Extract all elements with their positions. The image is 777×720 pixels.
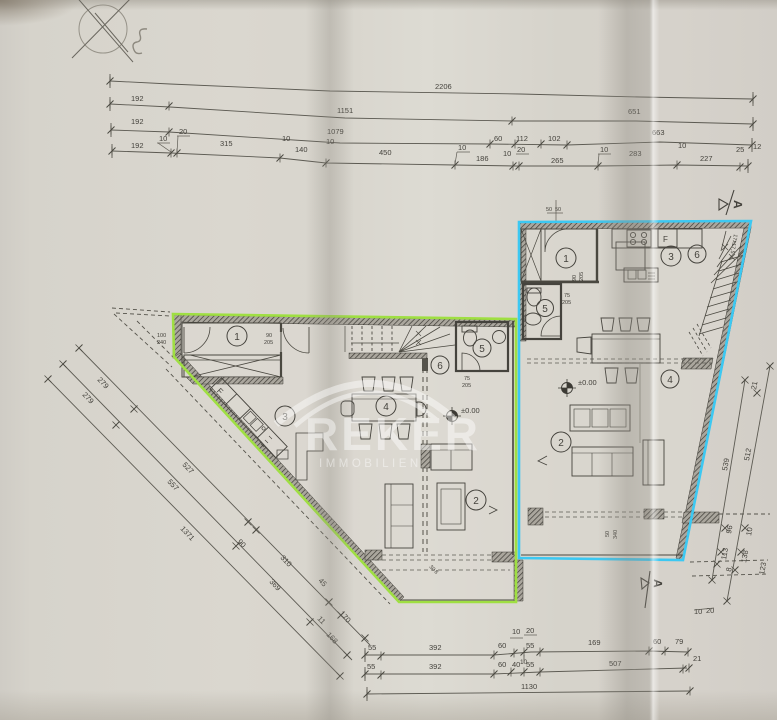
svg-text:12: 12 [753,142,761,151]
svg-text:90: 90 [266,333,272,339]
svg-text:±0.00: ±0.00 [578,378,597,387]
svg-text:102: 102 [548,134,561,143]
svg-text:392: 392 [429,643,442,652]
svg-text:20: 20 [179,127,187,136]
svg-text:392: 392 [429,662,442,671]
svg-text:55: 55 [526,641,534,650]
svg-text:10: 10 [744,527,754,537]
svg-text:10: 10 [512,627,520,636]
svg-text:192: 192 [131,94,144,103]
svg-text:6: 6 [694,250,700,261]
svg-text:75: 75 [464,376,470,382]
svg-text:10: 10 [458,143,466,152]
svg-text:5: 5 [542,304,548,315]
svg-text:192: 192 [131,141,144,150]
svg-text:186: 186 [476,154,489,163]
svg-text:A: A [731,200,745,209]
svg-text:205: 205 [264,340,273,346]
svg-text:112: 112 [516,134,528,143]
svg-text:1: 1 [234,332,240,343]
svg-text:10: 10 [503,149,511,158]
svg-text:55: 55 [367,662,375,671]
svg-text:55: 55 [526,660,534,669]
svg-text:75: 75 [564,293,570,299]
svg-text:1130: 1130 [521,682,537,691]
svg-text:192: 192 [131,117,144,126]
svg-text:55: 55 [368,643,376,652]
svg-text:2: 2 [558,438,564,449]
svg-text:265: 265 [551,156,564,165]
svg-text:2: 2 [473,496,479,507]
svg-text:140: 140 [295,145,308,154]
svg-text:205: 205 [462,383,471,389]
svg-text:450: 450 [379,148,392,157]
svg-text:3: 3 [668,252,674,263]
svg-text:205: 205 [579,272,585,281]
svg-text:10: 10 [282,134,290,143]
svg-text:40: 40 [512,660,520,669]
svg-text:60: 60 [494,134,502,143]
svg-text:96: 96 [724,525,734,535]
svg-text:21: 21 [693,654,701,663]
svg-text:240: 240 [157,340,166,346]
svg-text:90: 90 [572,275,578,281]
svg-text:10: 10 [159,134,167,143]
svg-text:REKER: REKER [305,408,481,460]
svg-text:205: 205 [562,300,571,306]
svg-text:21: 21 [749,381,759,391]
svg-text:60: 60 [498,660,506,669]
svg-text:227: 227 [700,154,713,163]
svg-text:100: 100 [157,333,166,339]
svg-text:20: 20 [706,606,714,615]
svg-text:10: 10 [678,141,686,150]
svg-text:IMMOBILIEN: IMMOBILIEN [319,458,422,470]
svg-text:4: 4 [667,375,673,386]
svg-text:50: 50 [546,207,552,213]
svg-text:60: 60 [498,641,506,650]
svg-text:2206: 2206 [435,82,452,91]
svg-text:5: 5 [479,344,485,355]
svg-text:20: 20 [517,145,525,154]
svg-text:79: 79 [675,637,683,646]
svg-text:6: 6 [437,361,443,372]
svg-text:20: 20 [526,626,534,635]
svg-text:315: 315 [220,139,233,148]
svg-text:F: F [663,235,668,244]
svg-text:10: 10 [694,607,702,616]
svg-text:1: 1 [563,254,569,265]
svg-text:25: 25 [736,145,744,154]
